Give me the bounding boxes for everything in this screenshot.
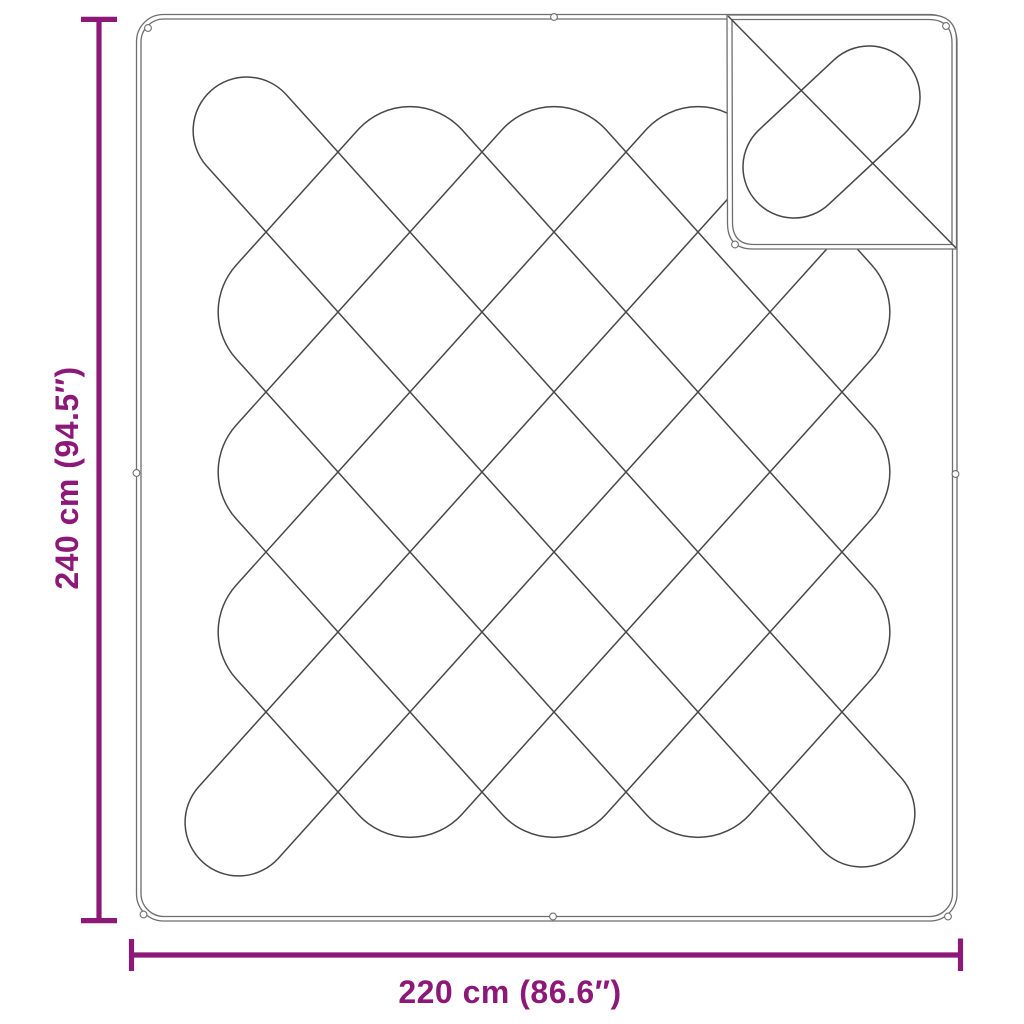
snap-button (551, 14, 558, 21)
snap-button (133, 470, 140, 477)
snap-button (732, 241, 739, 248)
width-dimension-label: 220 cm (86.6″) (398, 974, 621, 1010)
snap-button (550, 913, 557, 920)
snap-button (943, 23, 950, 30)
snap-button (140, 911, 147, 918)
blanket-diagram-canvas: 240 cm (94.5″) 220 cm (86.6″) (0, 0, 1024, 1024)
width-dimension: 220 cm (86.6″) (132, 939, 961, 1011)
height-dimension-label: 240 cm (94.5″) (49, 366, 85, 589)
height-dimension: 240 cm (94.5″) (49, 19, 117, 920)
folded-corner (727, 15, 957, 249)
snap-button (952, 471, 959, 478)
snap-button (945, 913, 952, 920)
snap-button (145, 25, 152, 32)
product-dimension-diagram: 240 cm (94.5″) 220 cm (86.6″) (0, 0, 1024, 1024)
